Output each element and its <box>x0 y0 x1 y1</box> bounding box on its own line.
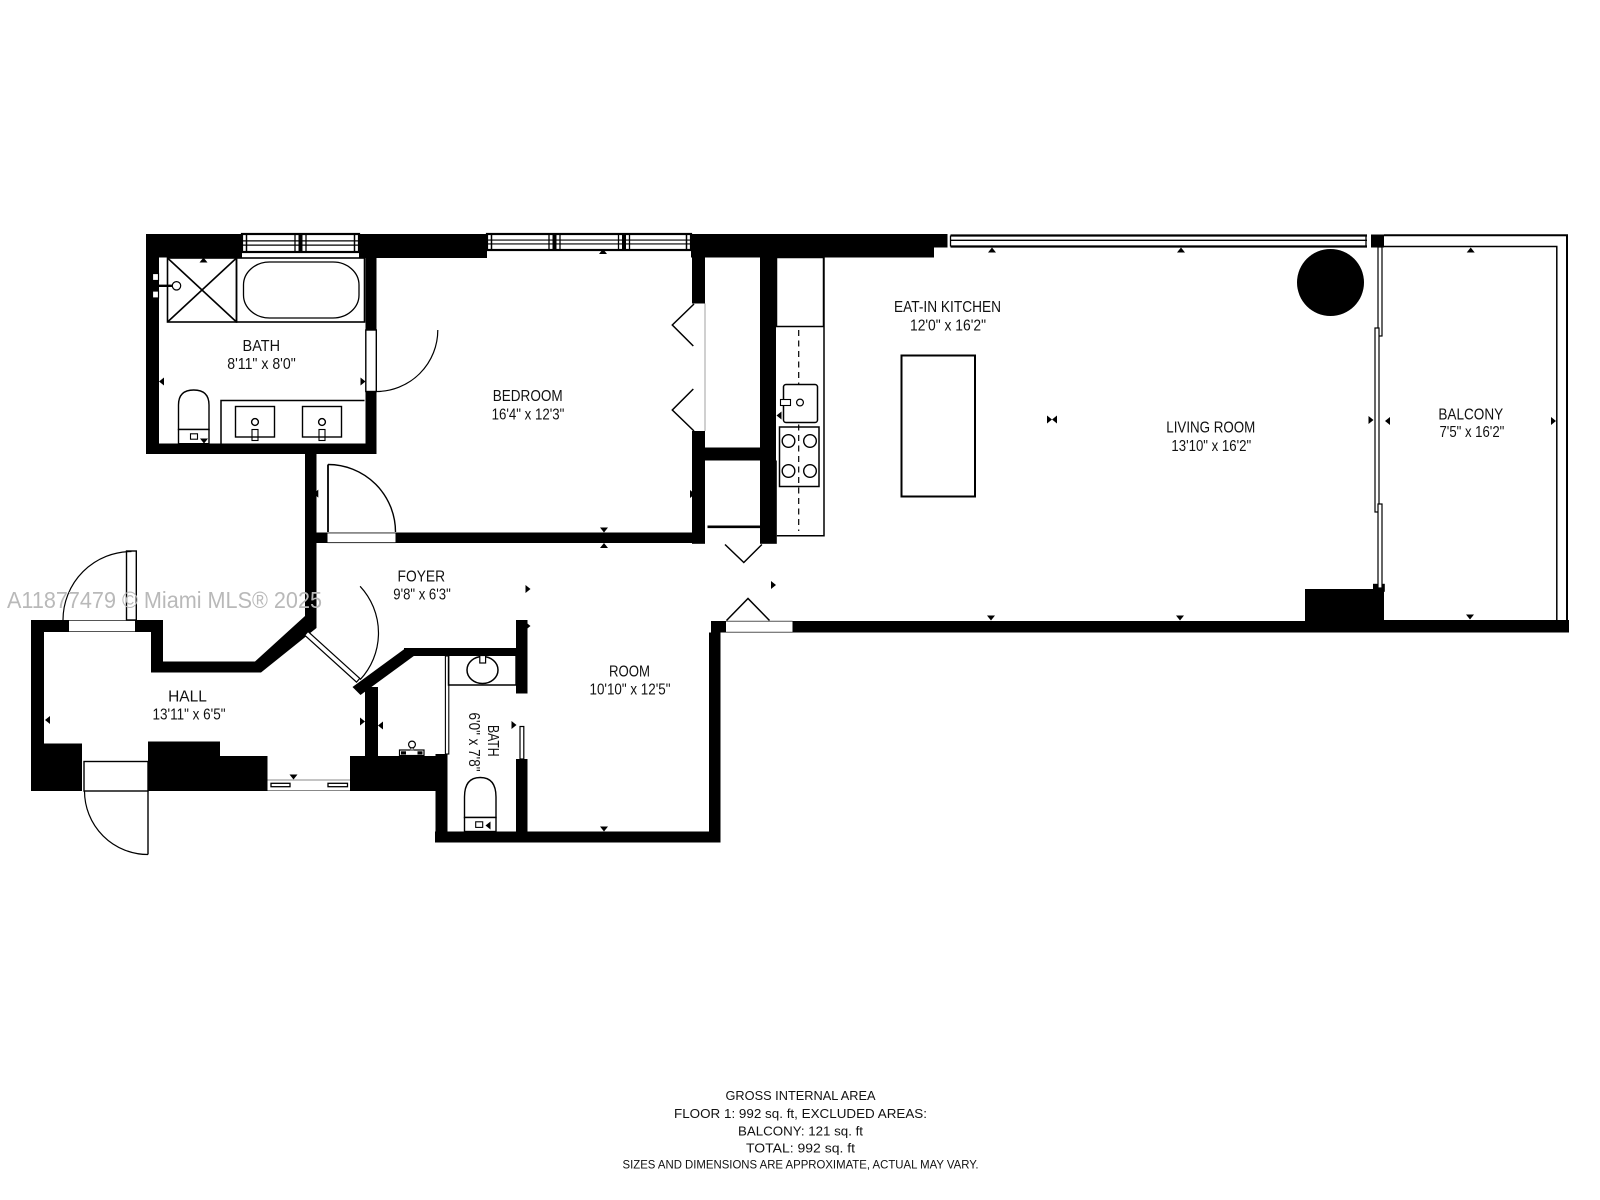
svg-text:BALCONY: 121 sq. ft: BALCONY: 121 sq. ft <box>738 1124 863 1139</box>
svg-text:12'0" x 16'2": 12'0" x 16'2" <box>910 318 986 335</box>
svg-text:BATH: BATH <box>484 725 501 757</box>
svg-text:6'0" x 7'8": 6'0" x 7'8" <box>465 713 482 772</box>
svg-text:GROSS INTERNAL AREA: GROSS INTERNAL AREA <box>726 1088 876 1103</box>
svg-text:13'10" x 16'2": 13'10" x 16'2" <box>1171 438 1251 455</box>
svg-text:8'11" x 8'0": 8'11" x 8'0" <box>227 356 296 373</box>
svg-text:ROOM: ROOM <box>609 664 650 681</box>
svg-text:EAT-IN KITCHEN: EAT-IN KITCHEN <box>894 299 1001 316</box>
svg-text:FLOOR 1: 992 sq. ft, EXCLUDED: FLOOR 1: 992 sq. ft, EXCLUDED AREAS: <box>674 1106 927 1121</box>
svg-text:10'10" x 12'5": 10'10" x 12'5" <box>590 682 671 699</box>
svg-text:BATH: BATH <box>243 338 281 355</box>
svg-text:A11877479 © Miami MLS® 2025: A11877479 © Miami MLS® 2025 <box>7 587 322 613</box>
svg-text:TOTAL: 992 sq. ft: TOTAL: 992 sq. ft <box>746 1141 855 1156</box>
svg-text:BALCONY: BALCONY <box>1438 407 1503 424</box>
svg-text:16'4" x 12'3": 16'4" x 12'3" <box>492 407 565 424</box>
svg-text:FOYER: FOYER <box>398 569 446 586</box>
svg-text:BEDROOM: BEDROOM <box>493 388 563 405</box>
svg-text:13'11" x 6'5": 13'11" x 6'5" <box>153 707 226 724</box>
svg-text:7'5" x 16'2": 7'5" x 16'2" <box>1440 424 1505 441</box>
svg-text:HALL: HALL <box>168 689 207 706</box>
svg-text:SIZES AND DIMENSIONS ARE APPRO: SIZES AND DIMENSIONS ARE APPROXIMATE, AC… <box>623 1160 979 1172</box>
svg-text:LIVING ROOM: LIVING ROOM <box>1166 420 1255 437</box>
svg-text:9'8" x 6'3": 9'8" x 6'3" <box>393 587 451 604</box>
